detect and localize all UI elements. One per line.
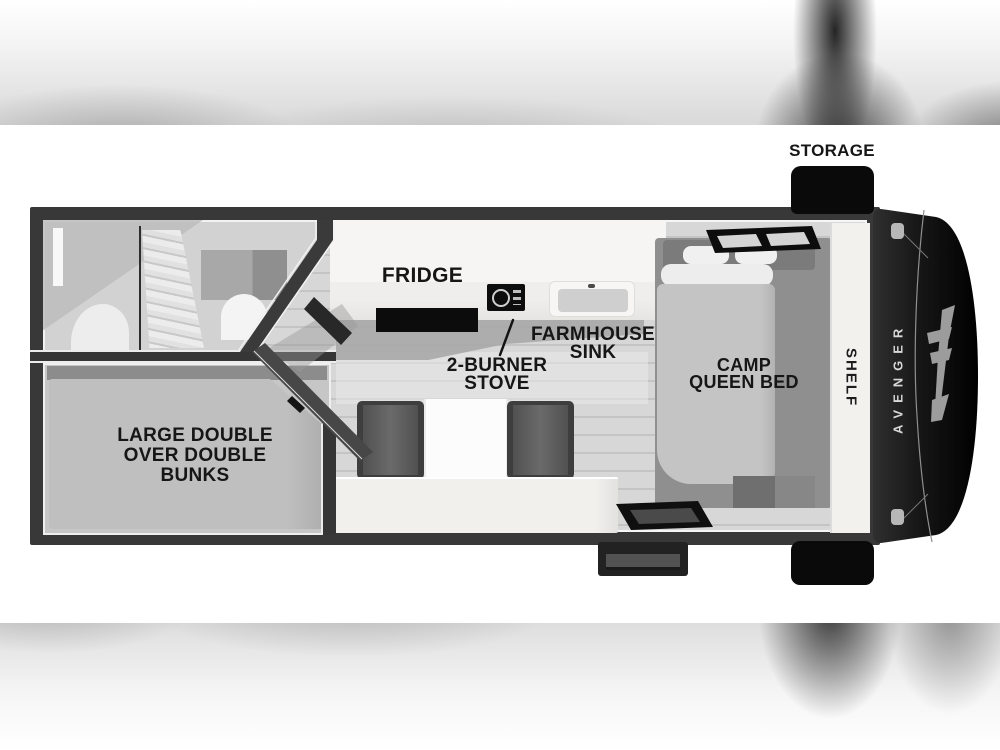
interior-divider-wall xyxy=(30,350,336,363)
two-burner-stove xyxy=(487,284,525,311)
pillow-bolster xyxy=(661,264,773,286)
bunk-room-wall xyxy=(321,424,336,535)
foot-storage-cube xyxy=(775,476,815,508)
bench-cushion xyxy=(363,405,418,475)
bunks-label: LARGE DOUBLE OVER DOUBLE BUNKS xyxy=(70,426,320,486)
stove-knobs-icon xyxy=(513,290,521,305)
exterior-storage-compartment xyxy=(791,166,874,214)
fridge-label: FRIDGE xyxy=(350,264,495,288)
sink-faucet-icon xyxy=(588,284,595,288)
bunks-label-line1: LARGE DOUBLE xyxy=(70,426,320,446)
cap-marker-light xyxy=(891,223,904,239)
screenshot-stage: STORAGE LARGE DOUBLE OVER DOUBLE BUNKS xyxy=(0,0,1000,750)
blurred-backdrop-top xyxy=(0,0,1000,125)
wardrobe-cabinet xyxy=(201,250,287,300)
farmhouse-sink xyxy=(549,281,635,317)
storage-label: STORAGE xyxy=(780,141,884,161)
stove-label-line2: STOVE xyxy=(422,375,572,393)
dinette-bench-right xyxy=(507,401,574,479)
wardrobe-door-gap xyxy=(53,228,63,286)
brand-name-vertical: AVENGER xyxy=(888,290,908,466)
dinette-side-ledge xyxy=(334,477,618,533)
bunk-headrail xyxy=(47,366,327,380)
sink-basin xyxy=(558,289,628,312)
pillow xyxy=(735,246,777,264)
bed-label-line2: QUEEN BED xyxy=(669,374,819,391)
foot-storage-cube xyxy=(733,476,775,508)
exterior-storage-compartment-rear xyxy=(791,541,874,585)
front-cap: AVENGER xyxy=(872,206,978,546)
closet-rod xyxy=(139,226,141,350)
entry-step xyxy=(598,542,688,576)
shelf-label: SHELF xyxy=(843,348,860,407)
wardrobe-seat xyxy=(71,304,129,352)
hanging-clothes xyxy=(142,230,204,348)
bunks-label-line2: OVER DOUBLE xyxy=(70,446,320,466)
entry-step-tread xyxy=(606,554,680,570)
camp-queen-bed-label: CAMP QUEEN BED xyxy=(669,357,819,391)
stove-burner-icon xyxy=(492,289,510,307)
blurred-backdrop-bottom xyxy=(0,623,1000,750)
dinette-table xyxy=(424,399,508,479)
bench-cushion xyxy=(513,405,568,475)
fridge-unit xyxy=(376,308,478,332)
bunks-label-line3: BUNKS xyxy=(70,466,320,486)
dinette-bench-left xyxy=(357,401,424,479)
pillow xyxy=(683,246,729,264)
cap-marker-light xyxy=(891,509,904,525)
stove-label: 2-BURNER STOVE xyxy=(422,357,572,393)
shelf-strip: SHELF xyxy=(830,223,870,533)
